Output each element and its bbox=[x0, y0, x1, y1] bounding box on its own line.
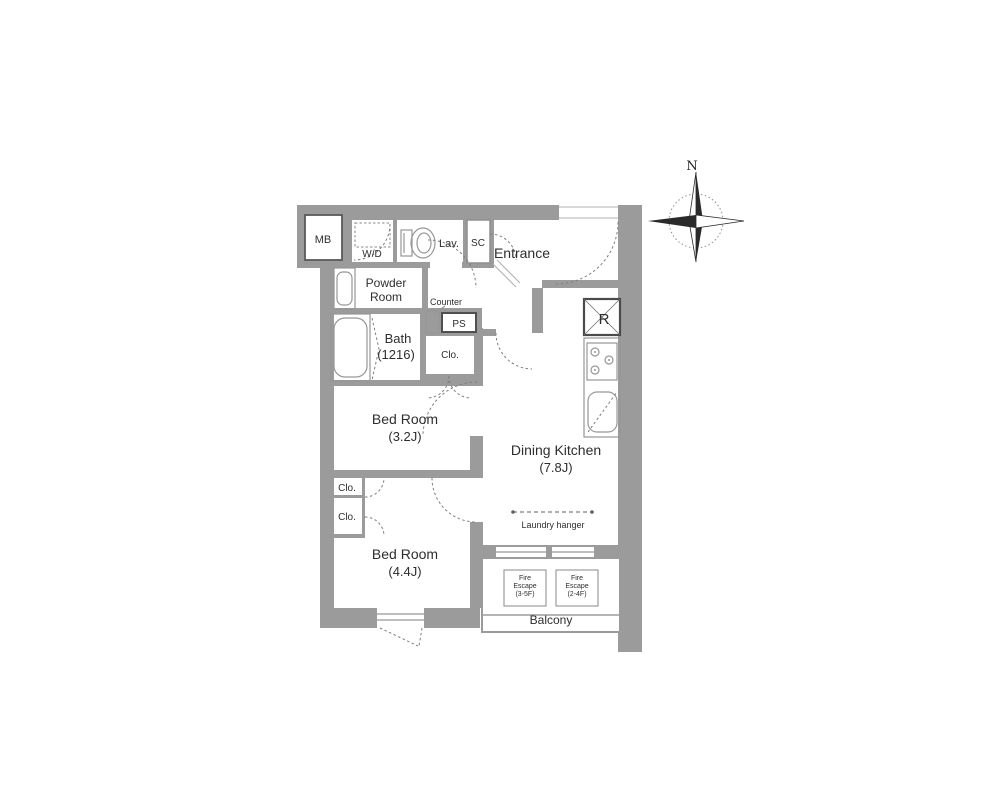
washbasin-icon bbox=[334, 268, 355, 309]
label-mb: MB bbox=[315, 234, 332, 246]
label-entrance: Entrance bbox=[494, 245, 550, 261]
label-fire-escape1-3: (3-5F) bbox=[515, 591, 534, 598]
bedroom1-door-arc bbox=[423, 382, 477, 436]
label-laundry-hanger: Laundry hanger bbox=[521, 520, 584, 530]
label-fire-escape1-2: Escape bbox=[513, 583, 536, 590]
label-lav: Lav. bbox=[439, 238, 459, 250]
wall-segment bbox=[334, 495, 365, 498]
compass-ew-ray bbox=[696, 215, 744, 228]
wall-segment bbox=[532, 288, 543, 333]
bathtub-icon bbox=[331, 314, 370, 381]
laundry-hanger-line bbox=[511, 510, 594, 514]
label-powder-room-2: Room bbox=[370, 290, 402, 304]
wall-segment bbox=[393, 218, 397, 262]
entrance-door-opening bbox=[559, 206, 618, 219]
bedroom2-door-arc bbox=[432, 478, 476, 522]
wall-segment bbox=[618, 205, 642, 652]
kitchen-counter bbox=[584, 338, 620, 437]
wall-segment bbox=[420, 374, 483, 380]
wall-segment bbox=[334, 534, 365, 538]
wall-segment bbox=[320, 470, 483, 478]
label-bath-2: (1216) bbox=[377, 347, 415, 362]
label-bath-1: Bath bbox=[385, 331, 412, 346]
label-bedroom2-1: Bed Room bbox=[372, 546, 438, 562]
closet-fold-arc bbox=[365, 478, 384, 497]
closet-fold-arc bbox=[365, 517, 384, 536]
wall-segment bbox=[362, 478, 365, 536]
wall-segment bbox=[470, 436, 483, 478]
label-fire-escape1-1: Fire bbox=[519, 575, 531, 582]
label-dining-kitchen-1: Dining Kitchen bbox=[511, 442, 601, 458]
label-bedroom2-2: (4.4J) bbox=[388, 564, 421, 579]
window-outswing-dash bbox=[380, 628, 422, 646]
label-balcony: Balcony bbox=[530, 613, 573, 627]
label-fire-escape2-1: Fire bbox=[571, 575, 583, 582]
compass-rose: N bbox=[648, 159, 744, 262]
label-refrigerator: R bbox=[599, 311, 610, 328]
label-powder-room-1: Powder bbox=[366, 276, 407, 290]
dk-door-arc bbox=[496, 333, 532, 369]
label-bedroom1-2: (3.2J) bbox=[388, 429, 421, 444]
wall-segment bbox=[420, 336, 426, 380]
wall-segment bbox=[542, 280, 618, 288]
label-fire-escape2-2: Escape bbox=[565, 583, 588, 590]
entrance-door-arc bbox=[556, 222, 618, 284]
sink-dash bbox=[588, 392, 617, 432]
bedroom2-window bbox=[377, 608, 424, 628]
floor-plan-page: MB W/D Lav. SC Entrance Powder Room Coun… bbox=[0, 0, 999, 801]
wall-segment bbox=[345, 262, 430, 268]
label-closet-2a: Clo. bbox=[338, 483, 356, 494]
label-ps: PS bbox=[452, 319, 466, 330]
label-closet-2b: Clo. bbox=[338, 512, 356, 523]
label-wd: W/D bbox=[362, 249, 381, 260]
label-closet-hall: Clo. bbox=[441, 350, 459, 361]
wall-segment bbox=[474, 329, 496, 336]
label-dining-kitchen-2: (7.8J) bbox=[539, 460, 572, 475]
label-bedroom1-1: Bed Room bbox=[372, 411, 438, 427]
label-fire-escape2-3: (2-4F) bbox=[567, 591, 586, 598]
toilet-icon bbox=[401, 228, 435, 258]
label-counter: Counter bbox=[430, 297, 462, 307]
compass-north-label: N bbox=[686, 159, 697, 174]
wall-segment bbox=[422, 262, 428, 308]
fixtures bbox=[305, 215, 620, 514]
label-sc: SC bbox=[471, 238, 485, 249]
floor-plan-drawing: MB W/D Lav. SC Entrance Powder Room Coun… bbox=[0, 0, 999, 801]
compass-ew-ray bbox=[648, 215, 696, 228]
entrance-step-line bbox=[493, 260, 520, 287]
